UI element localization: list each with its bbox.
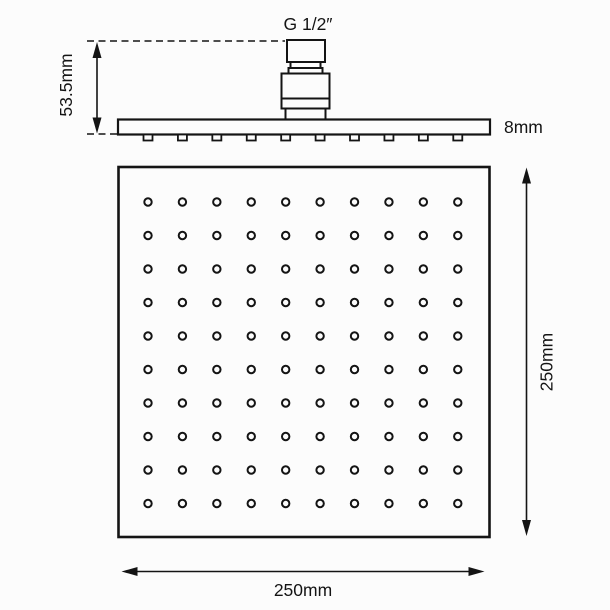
- height-label: 53.5mm: [56, 53, 76, 116]
- nozzle: [384, 135, 393, 141]
- nozzle: [453, 135, 462, 141]
- spray-hole: [282, 366, 289, 373]
- spray-hole: [248, 433, 255, 440]
- spray-hole: [144, 332, 151, 339]
- spray-hole: [179, 198, 186, 205]
- head-plate-profile: [118, 120, 490, 135]
- spray-hole: [248, 399, 255, 406]
- spray-hole: [351, 332, 358, 339]
- spray-hole: [385, 265, 392, 272]
- spray-hole: [385, 399, 392, 406]
- connector-base: [286, 109, 326, 120]
- spray-hole: [144, 366, 151, 373]
- spray-hole: [144, 198, 151, 205]
- spray-hole: [454, 366, 461, 373]
- spray-hole: [351, 232, 358, 239]
- spray-hole: [454, 500, 461, 507]
- spray-hole: [179, 399, 186, 406]
- spray-hole: [420, 198, 427, 205]
- spray-hole: [385, 433, 392, 440]
- spray-hole: [385, 500, 392, 507]
- arrow-up-icon: [522, 168, 531, 184]
- spray-hole: [144, 399, 151, 406]
- connector-pipe: [287, 40, 325, 62]
- spray-hole: [385, 366, 392, 373]
- spray-hole: [316, 332, 323, 339]
- spray-hole: [282, 299, 289, 306]
- spray-hole: [316, 232, 323, 239]
- spray-hole: [420, 265, 427, 272]
- face-width-label: 250mm: [274, 580, 332, 600]
- arrow-up-icon: [93, 42, 102, 58]
- spray-hole: [179, 265, 186, 272]
- spray-hole: [351, 433, 358, 440]
- face-width-dimension: 250mm: [122, 567, 485, 600]
- spray-hole: [385, 299, 392, 306]
- spray-hole: [248, 500, 255, 507]
- spray-hole: [248, 232, 255, 239]
- spray-hole: [351, 500, 358, 507]
- nozzle: [247, 135, 256, 141]
- spray-hole: [351, 198, 358, 205]
- spray-hole: [248, 466, 255, 473]
- spray-hole: [282, 232, 289, 239]
- spray-hole: [248, 332, 255, 339]
- spray-hole: [213, 466, 220, 473]
- nozzle: [178, 135, 187, 141]
- nozzle: [350, 135, 359, 141]
- spray-hole: [282, 332, 289, 339]
- spray-hole: [213, 433, 220, 440]
- arrow-down-icon: [93, 118, 102, 134]
- spray-hole: [316, 198, 323, 205]
- connector-fitting: [282, 40, 330, 120]
- spray-hole: [316, 500, 323, 507]
- spray-hole: [282, 466, 289, 473]
- spray-hole: [144, 265, 151, 272]
- spray-hole: [144, 466, 151, 473]
- spray-hole: [454, 399, 461, 406]
- spray-hole: [213, 198, 220, 205]
- spray-hole: [144, 299, 151, 306]
- dimension-drawing: 53.5mm G 1/2″ 8mm 250mm 250mm: [0, 0, 610, 610]
- spray-hole: [316, 265, 323, 272]
- drawing-svg: 53.5mm G 1/2″ 8mm 250mm 250mm: [0, 0, 610, 610]
- spray-hole: [213, 232, 220, 239]
- spray-hole: [420, 399, 427, 406]
- nozzle: [281, 135, 290, 141]
- nozzle: [212, 135, 221, 141]
- spray-hole: [282, 500, 289, 507]
- head-face-outline: [119, 167, 490, 537]
- spray-hole: [144, 500, 151, 507]
- spray-hole: [179, 232, 186, 239]
- arrow-down-icon: [522, 520, 531, 536]
- spray-hole: [144, 232, 151, 239]
- spray-hole: [316, 399, 323, 406]
- spray-hole: [282, 433, 289, 440]
- spray-hole: [213, 299, 220, 306]
- spray-hole: [248, 198, 255, 205]
- spray-hole: [420, 332, 427, 339]
- spray-hole: [351, 466, 358, 473]
- spray-hole: [454, 198, 461, 205]
- spray-hole: [454, 265, 461, 272]
- spray-hole: [454, 299, 461, 306]
- spray-hole: [454, 332, 461, 339]
- spray-hole: [179, 299, 186, 306]
- spray-hole: [385, 198, 392, 205]
- arrow-right-icon: [469, 567, 485, 576]
- spray-hole: [385, 332, 392, 339]
- spray-hole: [454, 232, 461, 239]
- spray-hole: [213, 500, 220, 507]
- nozzle: [316, 135, 325, 141]
- spray-hole: [454, 433, 461, 440]
- spray-hole: [454, 466, 461, 473]
- connector-body: [282, 74, 330, 109]
- connector-label: G 1/2″: [284, 14, 333, 34]
- spray-hole: [420, 433, 427, 440]
- spray-hole: [420, 232, 427, 239]
- spray-hole: [351, 399, 358, 406]
- spray-hole: [282, 399, 289, 406]
- nozzle: [144, 135, 153, 141]
- spray-hole: [351, 366, 358, 373]
- thickness-label: 8mm: [504, 117, 543, 137]
- spray-hole: [179, 500, 186, 507]
- side-view: 53.5mm G 1/2″ 8mm: [56, 14, 543, 141]
- spray-hole: [351, 265, 358, 272]
- spray-hole: [385, 232, 392, 239]
- spray-hole: [316, 366, 323, 373]
- face-height-label: 250mm: [537, 333, 557, 391]
- spray-hole: [282, 198, 289, 205]
- spray-hole: [316, 299, 323, 306]
- spray-hole: [179, 332, 186, 339]
- spray-hole: [351, 299, 358, 306]
- spray-hole: [316, 466, 323, 473]
- spray-hole: [213, 366, 220, 373]
- spray-hole: [179, 366, 186, 373]
- spray-hole: [213, 332, 220, 339]
- spray-hole: [420, 299, 427, 306]
- spray-hole: [213, 265, 220, 272]
- spray-hole: [420, 366, 427, 373]
- spray-hole: [282, 265, 289, 272]
- bottom-view: 250mm 250mm: [119, 167, 557, 600]
- nozzle: [419, 135, 428, 141]
- spray-hole: [179, 433, 186, 440]
- spray-hole: [213, 399, 220, 406]
- spray-hole: [248, 299, 255, 306]
- spray-hole: [316, 433, 323, 440]
- face-height-dimension: 250mm: [522, 168, 557, 537]
- arrow-left-icon: [122, 567, 138, 576]
- spray-hole: [179, 466, 186, 473]
- spray-hole: [420, 466, 427, 473]
- spray-hole: [248, 366, 255, 373]
- spray-hole: [248, 265, 255, 272]
- spray-hole: [144, 433, 151, 440]
- spray-hole: [420, 500, 427, 507]
- spray-hole: [385, 466, 392, 473]
